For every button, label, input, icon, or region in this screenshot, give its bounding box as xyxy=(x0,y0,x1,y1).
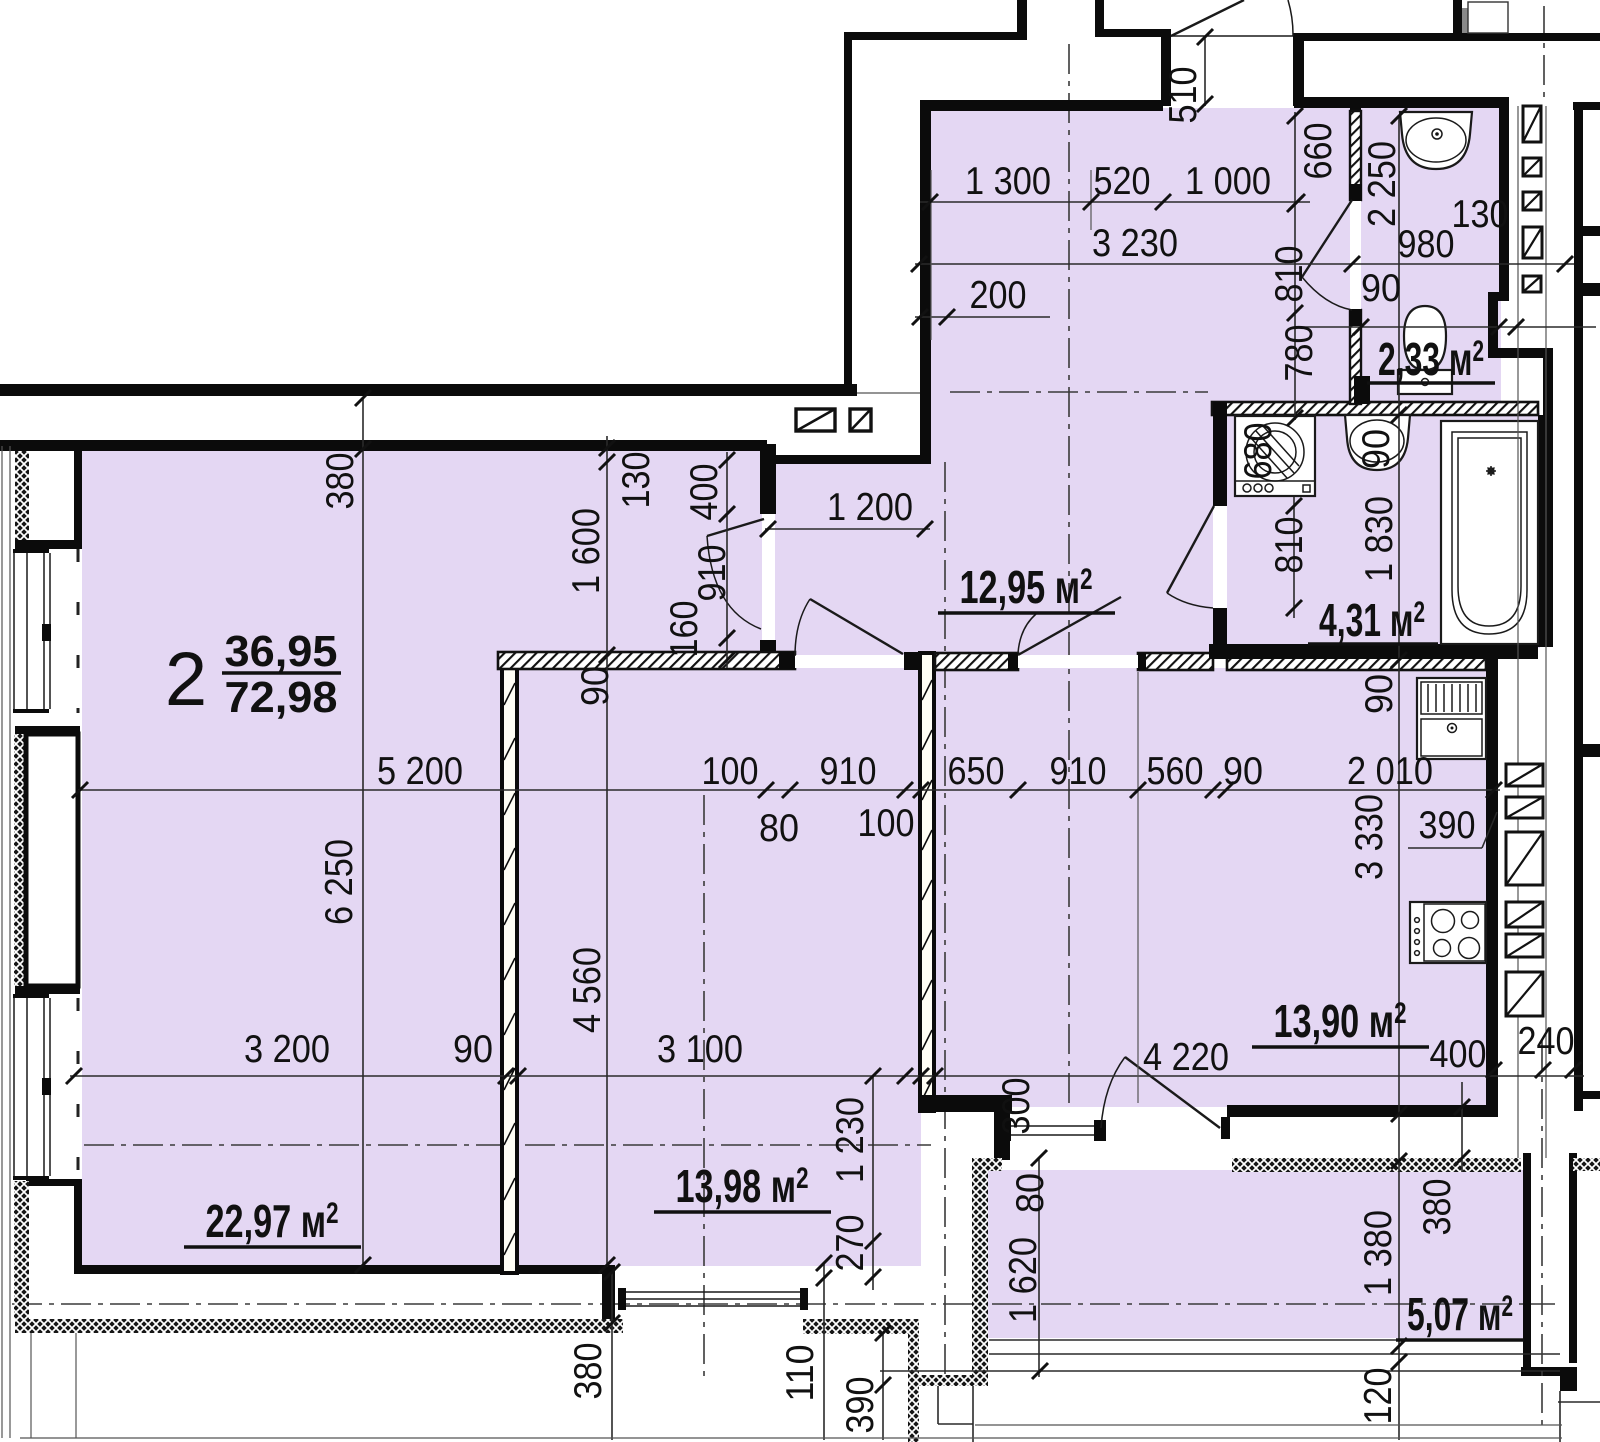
svg-text:810: 810 xyxy=(1268,246,1311,303)
svg-text:510: 510 xyxy=(1162,67,1205,124)
svg-text:2 250: 2 250 xyxy=(1361,141,1404,227)
svg-text:1 380: 1 380 xyxy=(1357,1210,1400,1296)
svg-text:240: 240 xyxy=(1518,1020,1575,1063)
svg-text:90: 90 xyxy=(453,1028,493,1071)
svg-text:130: 130 xyxy=(1452,193,1509,236)
svg-text:4,31 м2: 4,31 м2 xyxy=(1319,594,1425,646)
svg-text:3 100: 3 100 xyxy=(657,1028,743,1071)
svg-text:910: 910 xyxy=(691,545,734,602)
svg-text:100: 100 xyxy=(702,750,759,793)
svg-text:36,95: 36,95 xyxy=(225,627,338,676)
svg-text:90: 90 xyxy=(1358,674,1401,714)
svg-text:4 560: 4 560 xyxy=(566,947,609,1033)
svg-text:160: 160 xyxy=(663,601,706,658)
svg-text:22,97 м2: 22,97 м2 xyxy=(206,1195,339,1247)
svg-text:80: 80 xyxy=(759,807,799,850)
svg-text:100: 100 xyxy=(858,802,915,845)
svg-text:680: 680 xyxy=(1237,423,1280,480)
svg-text:1 200: 1 200 xyxy=(827,486,913,529)
svg-text:780: 780 xyxy=(1278,325,1321,382)
svg-text:380: 380 xyxy=(319,453,362,510)
svg-text:2 010: 2 010 xyxy=(1347,750,1433,793)
svg-text:110: 110 xyxy=(779,1345,822,1402)
svg-text:90: 90 xyxy=(1361,267,1401,310)
svg-text:1 600: 1 600 xyxy=(565,508,608,594)
svg-text:1 000: 1 000 xyxy=(1185,160,1271,203)
svg-text:6 250: 6 250 xyxy=(318,839,361,925)
svg-text:380: 380 xyxy=(567,1343,610,1400)
svg-text:90: 90 xyxy=(574,666,617,706)
svg-text:300: 300 xyxy=(995,1078,1038,1135)
svg-text:4 220: 4 220 xyxy=(1143,1036,1229,1079)
svg-text:560: 560 xyxy=(1147,750,1204,793)
svg-text:13,90 м2: 13,90 м2 xyxy=(1274,995,1407,1047)
svg-text:390: 390 xyxy=(839,1377,882,1434)
svg-text:90: 90 xyxy=(1223,750,1263,793)
svg-text:400: 400 xyxy=(1430,1033,1487,1076)
svg-text:13,98 м2: 13,98 м2 xyxy=(676,1160,809,1212)
svg-text:520: 520 xyxy=(1094,160,1151,203)
svg-text:910: 910 xyxy=(1050,750,1107,793)
svg-text:200: 200 xyxy=(970,274,1027,317)
svg-text:120: 120 xyxy=(1357,1368,1400,1425)
svg-text:650: 650 xyxy=(948,750,1005,793)
svg-text:5,07 м2: 5,07 м2 xyxy=(1407,1288,1513,1340)
svg-text:2,33 м2: 2,33 м2 xyxy=(1378,333,1484,385)
svg-text:1 620: 1 620 xyxy=(1002,1237,1045,1323)
svg-text:1 300: 1 300 xyxy=(965,160,1051,203)
svg-text:5 200: 5 200 xyxy=(377,750,463,793)
svg-text:2: 2 xyxy=(165,637,207,722)
svg-text:380: 380 xyxy=(1416,1179,1459,1236)
svg-text:72,98: 72,98 xyxy=(225,673,338,722)
svg-text:660: 660 xyxy=(1297,123,1340,180)
svg-text:3 230: 3 230 xyxy=(1092,222,1178,265)
svg-text:12,95 м2: 12,95 м2 xyxy=(960,561,1093,613)
svg-text:910: 910 xyxy=(820,750,877,793)
svg-text:1 230: 1 230 xyxy=(829,1097,872,1183)
svg-text:90: 90 xyxy=(1355,429,1398,469)
svg-text:1 830: 1 830 xyxy=(1358,496,1401,582)
svg-text:130: 130 xyxy=(615,452,658,509)
svg-text:270: 270 xyxy=(829,1215,872,1272)
svg-text:80: 80 xyxy=(1009,1173,1052,1213)
svg-text:810: 810 xyxy=(1268,517,1311,574)
svg-text:3 330: 3 330 xyxy=(1348,794,1391,880)
svg-text:3 200: 3 200 xyxy=(244,1028,330,1071)
svg-text:980: 980 xyxy=(1398,223,1455,266)
svg-text:400: 400 xyxy=(683,464,726,521)
svg-text:390: 390 xyxy=(1419,804,1476,847)
